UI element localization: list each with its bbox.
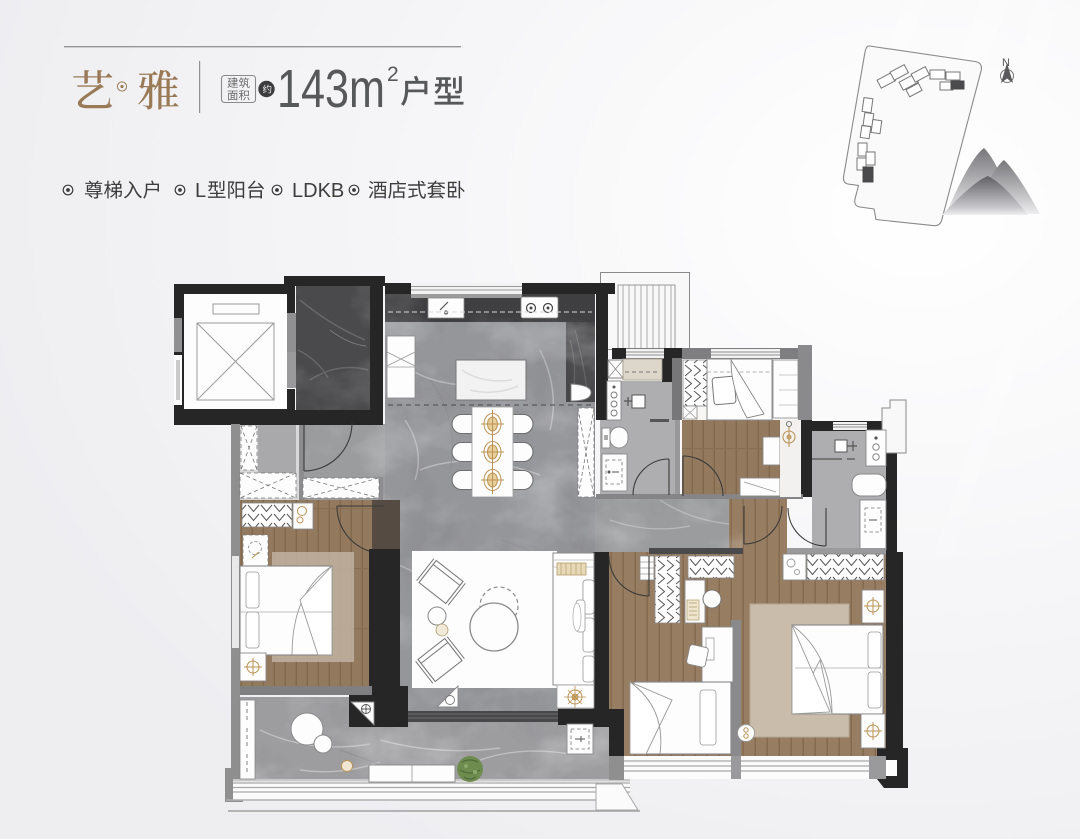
svg-text:2: 2 [387,63,399,86]
svg-text:L: L [195,180,206,202]
svg-text:LDKB: LDKB [292,180,344,202]
svg-text:143m: 143m [277,59,385,119]
